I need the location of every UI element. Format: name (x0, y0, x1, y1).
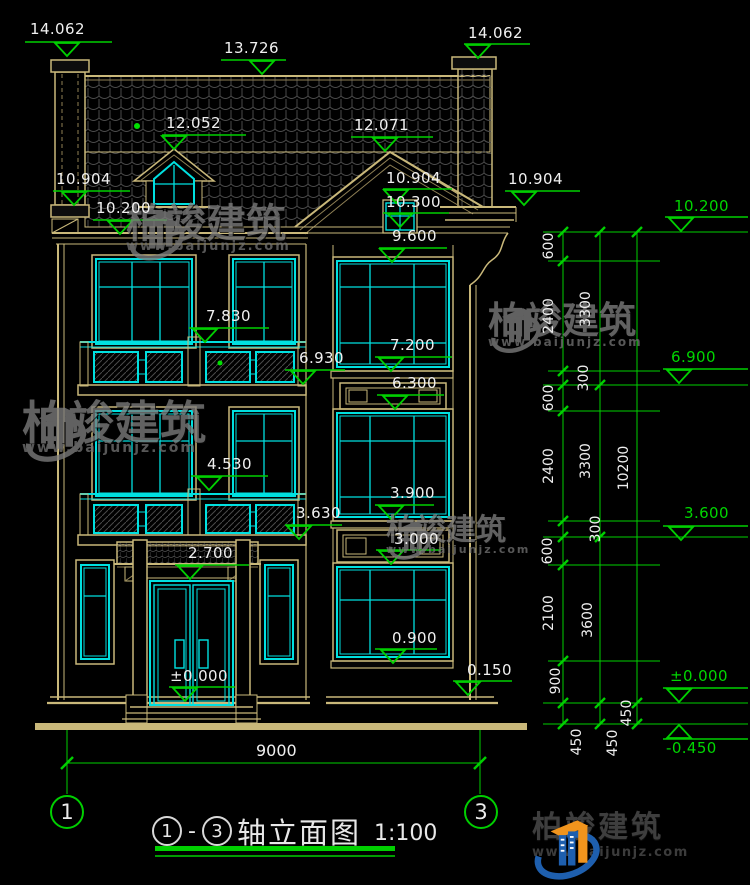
right-chimney (452, 57, 496, 207)
door-handle-icon (199, 640, 208, 668)
elevation-marker: 4.530 (207, 457, 252, 472)
ground-line (35, 723, 527, 730)
elevation-marker: 14.062 (30, 22, 85, 37)
elevation-marker: ±0.000 (670, 669, 728, 684)
dimension-label: 300 (577, 365, 591, 392)
elevation-marker: 6.300 (392, 376, 437, 391)
ground-dimension (61, 730, 486, 794)
watermark: 柏竣建筑 www.baijunjz.com (488, 302, 643, 348)
title-axis-start: 1 (152, 816, 182, 846)
brand-building-icon (22, 400, 90, 468)
elevation-marker: 0.900 (392, 631, 437, 646)
elevation-marker: 3.000 (394, 532, 439, 547)
cad-elevation-drawing: 柏竣建筑 www.baijunjz.com 柏竣建筑 www.baijunjz.… (0, 0, 750, 885)
brand-building-icon (488, 302, 544, 358)
dimension-label: 2400 (542, 448, 556, 484)
elevation-marker: 13.726 (224, 41, 279, 56)
dimension-label: 450 (570, 729, 584, 756)
door-handle-icon (175, 640, 184, 668)
left-chimney (51, 60, 89, 233)
cad-point (134, 123, 140, 129)
elevation-marker: 12.052 (166, 116, 221, 131)
axis-number: 3 (474, 800, 487, 824)
dimension-label: 3600 (581, 602, 595, 638)
axis-bubble-3: 3 (464, 795, 498, 829)
elevation-marker: 3.600 (684, 506, 729, 521)
elevation-marker: 10.904 (508, 172, 563, 187)
dimension-label: 10200 (617, 446, 631, 491)
elevation-marker: 3.900 (390, 486, 435, 501)
elevation-marker: 7.830 (206, 309, 251, 324)
elevation-marker: 3.630 (296, 506, 341, 521)
title-separator: - (188, 819, 196, 844)
elevation-marker: 9.600 (392, 229, 437, 244)
dimension-label: 3300 (579, 443, 593, 479)
dimension-label: 900 (549, 668, 563, 695)
dimension-label: 3300 (579, 291, 593, 327)
elevation-marker: 10.300 (386, 195, 441, 210)
cad-point (218, 361, 223, 366)
elevation-marker: 12.071 (354, 118, 409, 133)
elevation-marker: 14.062 (468, 26, 523, 41)
dimension-label: 300 (589, 516, 603, 543)
elevation-marker: 6.900 (671, 350, 716, 365)
dimension-label: 600 (542, 385, 556, 412)
title-text: 轴立面图 (237, 810, 361, 852)
logo-building-icon (532, 813, 606, 883)
title-axis-end: 3 (202, 816, 232, 846)
dimension-label: 450 (620, 700, 634, 727)
drawing-title: 1 - 3 轴立面图 1:100 (152, 810, 437, 852)
dimension-label: 450 (606, 730, 620, 757)
elevation-marker: 10.200 (674, 199, 729, 214)
entrance-steps (122, 695, 261, 723)
elevation-marker: 10.200 (96, 201, 151, 216)
scale-label: 1:100 (374, 821, 437, 846)
axis-number: 1 (60, 800, 73, 824)
elevation-marker: 10.904 (56, 172, 111, 187)
dimension-label: 2100 (542, 595, 556, 631)
overall-dimension-label: 9000 (256, 741, 297, 760)
elevation-marker: ±0.000 (170, 669, 228, 684)
elevation-marker: -0.450 (666, 741, 717, 756)
elevation-marker: 7.200 (390, 338, 435, 353)
axis-bubble-1: 1 (50, 795, 84, 829)
dimension-label: 600 (541, 538, 555, 565)
elevation-marker: 0.150 (467, 663, 512, 678)
dimension-label: 600 (542, 233, 556, 260)
dimension-label: 2400 (542, 298, 556, 334)
elevation-marker: 10.904 (386, 171, 441, 186)
watermark: 柏竣建筑 www.baijunjz.com (22, 400, 206, 455)
elevation-marker: 2.700 (188, 546, 233, 561)
elevation-marker: 6.930 (299, 351, 344, 366)
brand-logo: 柏竣建筑 www.baijunjz.com (532, 813, 689, 859)
